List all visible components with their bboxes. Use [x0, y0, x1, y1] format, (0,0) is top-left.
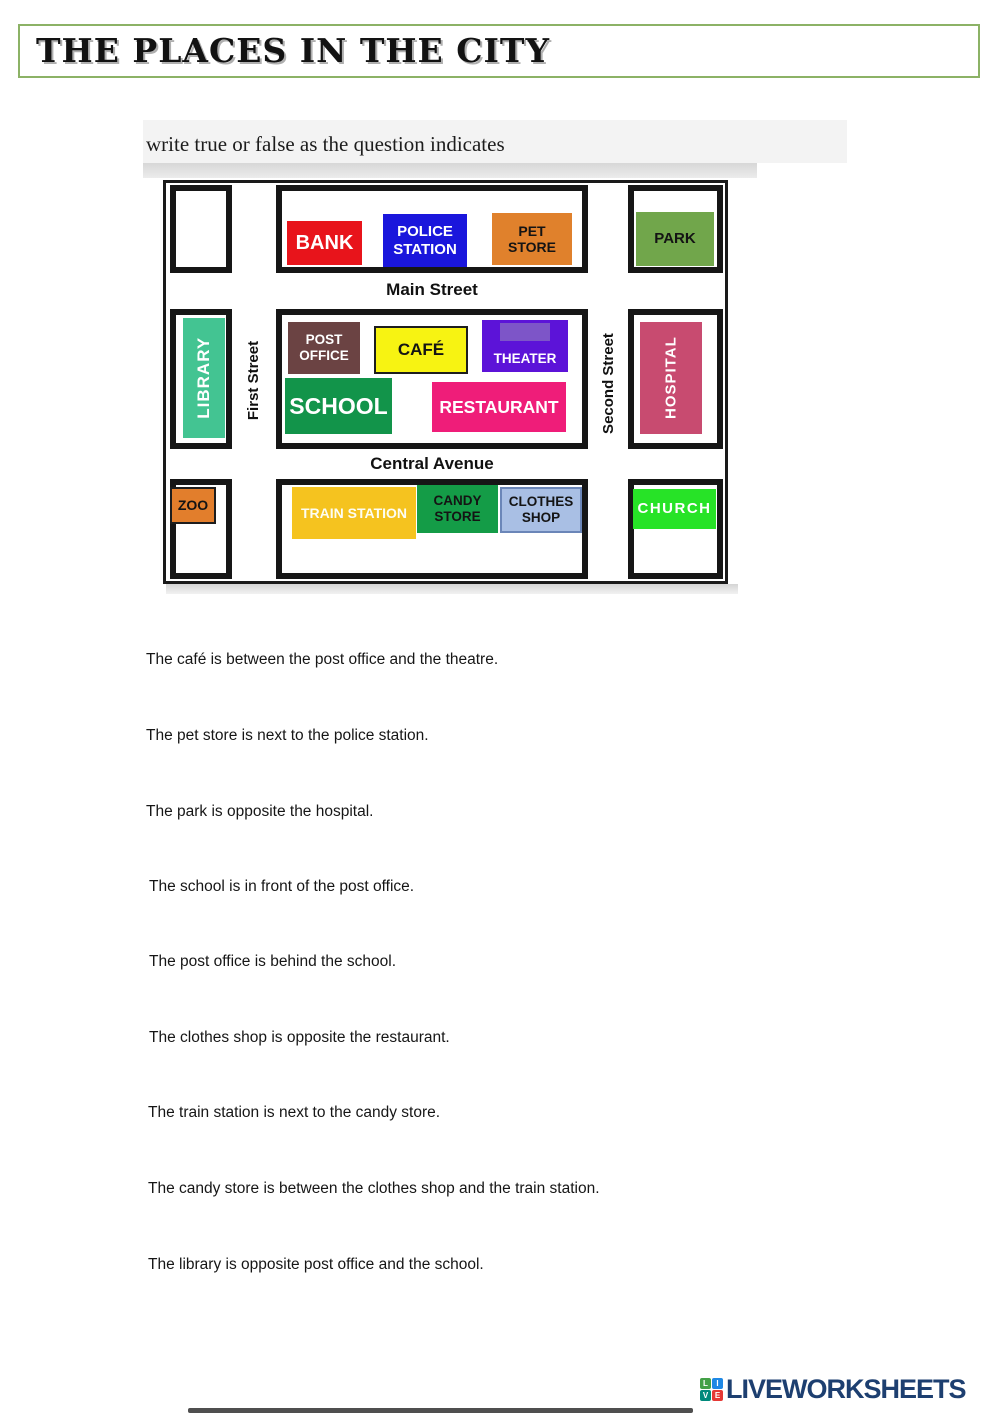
page-bottom-edge — [188, 1408, 693, 1413]
building-candy-store: CANDY STORE — [417, 485, 498, 533]
question-9: The library is opposite post office and … — [148, 1256, 484, 1274]
liveworksheets-logo[interactable]: L I V E LIVEWORKSHEETS — [700, 1374, 966, 1405]
building-park: PARK — [636, 212, 714, 266]
logo-letter-l: L — [700, 1378, 711, 1389]
building-post-office: POST OFFICE — [288, 322, 360, 374]
instruction-shadow — [143, 163, 757, 178]
building-cafe: CAFÉ — [374, 326, 468, 374]
first-street-text: First Street — [246, 341, 263, 420]
building-church: CHURCH — [633, 489, 716, 529]
question-8: The candy store is between the clothes s… — [148, 1180, 600, 1198]
building-bank: BANK — [287, 221, 362, 265]
theater-text: THEATER — [494, 351, 557, 367]
second-street-text: Second Street — [600, 333, 617, 434]
building-clothes-shop: CLOTHES SHOP — [500, 487, 582, 533]
building-zoo: ZOO — [170, 487, 216, 524]
question-7: The train station is next to the candy s… — [148, 1104, 440, 1122]
hospital-text: HOSPITAL — [662, 337, 679, 420]
instruction-strip: write true or false as the question indi… — [143, 120, 847, 163]
library-text: LIBRARY — [194, 337, 214, 419]
building-restaurant: RESTAURANT — [432, 382, 566, 432]
central-avenue-label: Central Avenue — [276, 451, 588, 477]
logo-letter-v: V — [700, 1390, 711, 1401]
question-2: The pet store is next to the police stat… — [146, 727, 429, 745]
first-street-label: First Street — [232, 318, 276, 443]
logo-letter-e: E — [712, 1390, 723, 1401]
logo-letter-i: I — [712, 1378, 723, 1389]
theater-stage-decor — [500, 323, 550, 341]
building-theater: THEATER — [482, 320, 568, 372]
building-police-station: POLICE STATION — [383, 214, 467, 267]
building-hospital: HOSPITAL — [640, 322, 702, 434]
main-street-label: Main Street — [276, 275, 588, 305]
instruction-text: write true or false as the question indi… — [143, 120, 847, 157]
question-6: The clothes shop is opposite the restaur… — [149, 1029, 450, 1047]
brand-text: LIVEWORKSHEETS — [726, 1374, 966, 1405]
building-train-station: TRAIN STATION — [292, 487, 416, 539]
block-top-left — [170, 185, 232, 273]
worksheet-page: THE PLACES IN THE CITY write true or fal… — [0, 0, 1000, 1413]
question-5: The post office is behind the school. — [149, 953, 396, 971]
question-4: The school is in front of the post offic… — [149, 878, 414, 896]
building-school: SCHOOL — [285, 378, 392, 434]
title-box: THE PLACES IN THE CITY — [18, 24, 980, 78]
map-shadow — [166, 584, 738, 594]
city-map: Main Street Central Avenue First Street … — [163, 180, 728, 584]
question-3: The park is opposite the hospital. — [146, 803, 373, 821]
liveworksheets-logo-icon: L I V E — [700, 1378, 723, 1401]
building-pet-store: PET STORE — [492, 213, 572, 265]
page-title: THE PLACES IN THE CITY — [20, 26, 978, 76]
building-library: LIBRARY — [183, 318, 225, 438]
second-street-label: Second Street — [588, 313, 628, 453]
question-1: The café is between the post office and … — [146, 651, 498, 669]
